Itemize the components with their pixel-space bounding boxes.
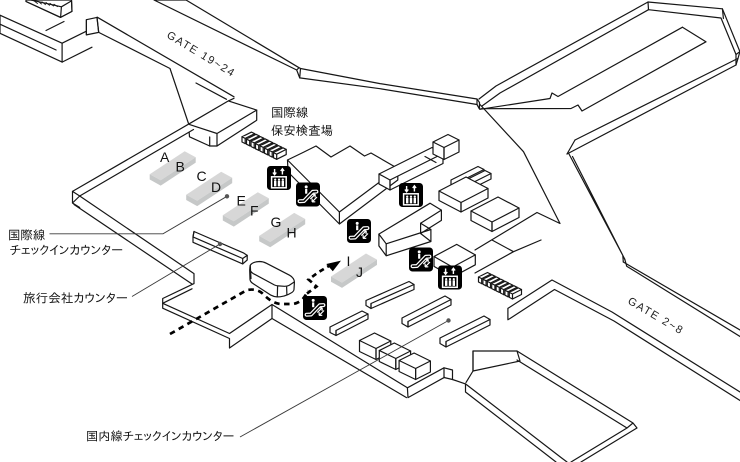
svg-text:D: D [211,179,221,195]
svg-text:E: E [237,193,246,209]
svg-text:H: H [287,224,297,240]
svg-text:J: J [356,264,363,280]
svg-text:F: F [250,203,259,219]
svg-text:B: B [176,159,185,175]
svg-text:C: C [197,168,207,184]
svg-text:I: I [347,253,351,269]
svg-text:G: G [271,214,282,230]
svg-text:A: A [160,149,170,165]
